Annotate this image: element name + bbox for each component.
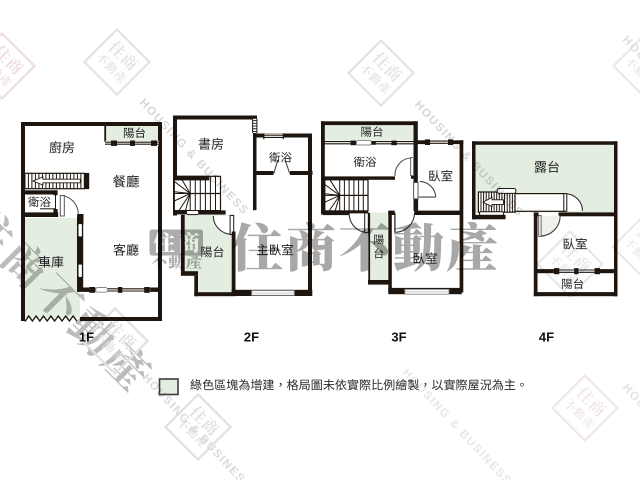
svg-text:3F: 3F (391, 330, 406, 345)
svg-text:2F: 2F (244, 330, 259, 345)
svg-text:4F: 4F (539, 330, 554, 345)
